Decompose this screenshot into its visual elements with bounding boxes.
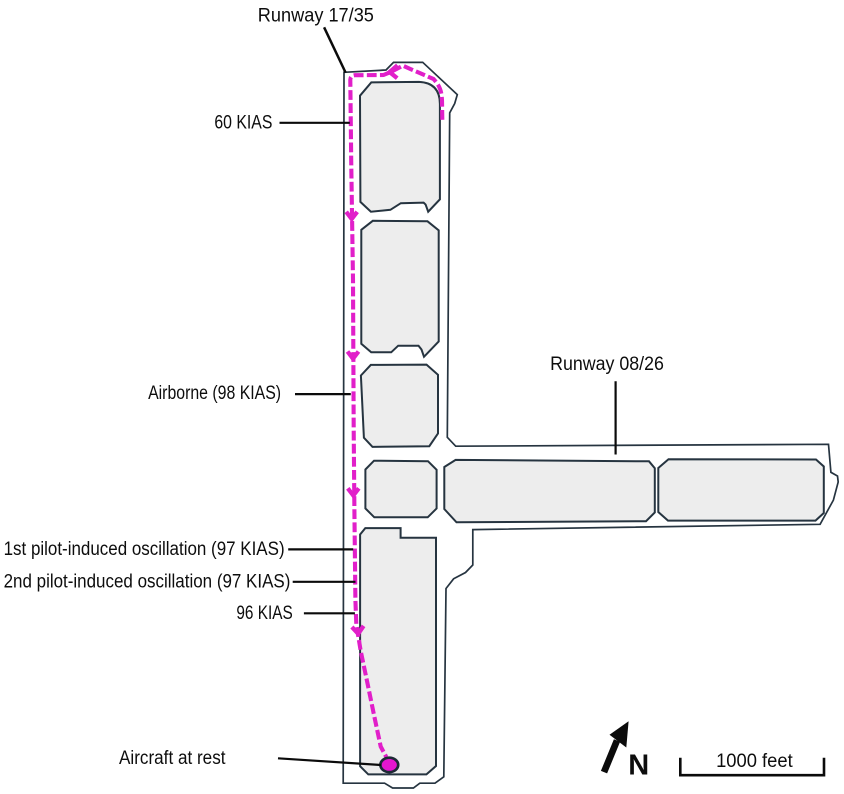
svg-text:60 KIAS: 60 KIAS bbox=[214, 113, 272, 134]
svg-text:1000 feet: 1000 feet bbox=[716, 751, 793, 772]
svg-text:Airborne (98 KIAS): Airborne (98 KIAS) bbox=[148, 383, 281, 404]
svg-text:Aircraft at rest: Aircraft at rest bbox=[119, 748, 226, 769]
svg-text:1st pilot-induced oscillation: 1st pilot-induced oscillation (97 KIAS) bbox=[4, 539, 285, 560]
svg-text:2nd pilot-induced oscillation: 2nd pilot-induced oscillation (97 KIAS) bbox=[4, 571, 291, 592]
svg-text:96 KIAS: 96 KIAS bbox=[236, 603, 292, 624]
svg-text:Runway 17/35: Runway 17/35 bbox=[258, 5, 374, 26]
svg-text:N: N bbox=[628, 750, 649, 782]
svg-text:Runway 08/26: Runway 08/26 bbox=[550, 354, 664, 375]
